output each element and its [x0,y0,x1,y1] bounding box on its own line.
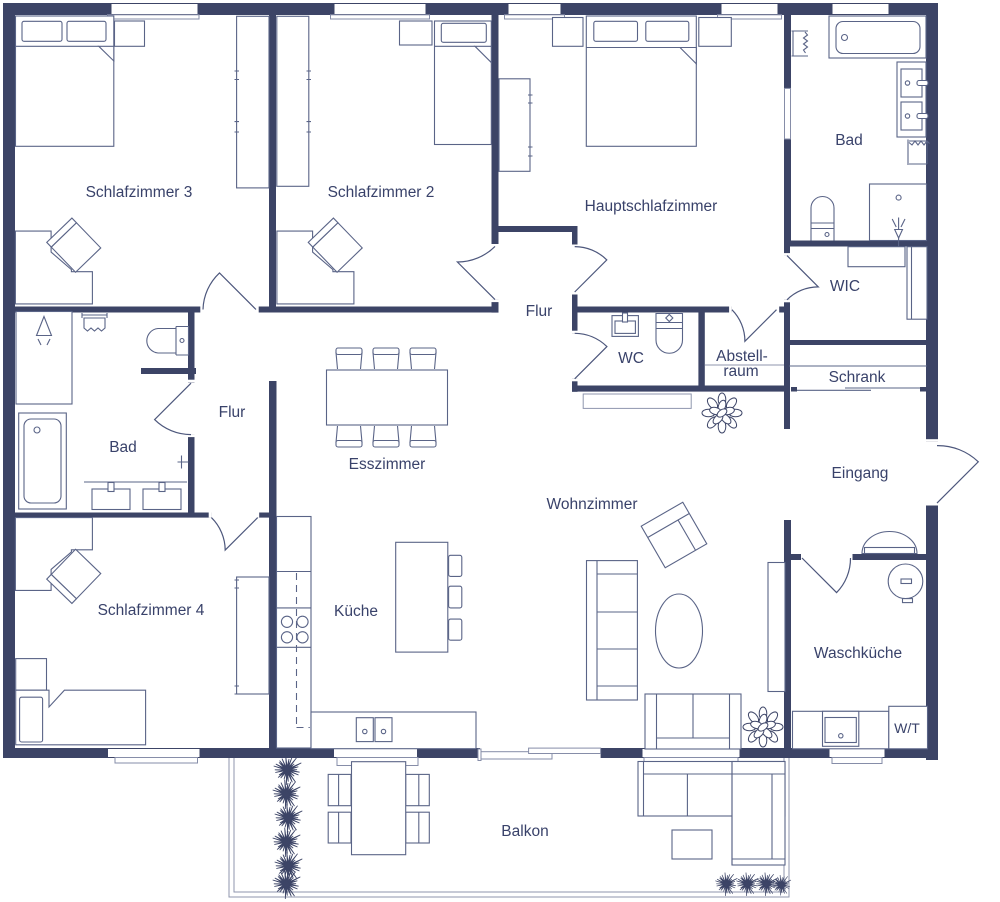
svg-text:WC: WC [618,350,644,367]
svg-text:Schlafzimmer 4: Schlafzimmer 4 [98,602,205,619]
svg-text:W/T: W/T [894,720,920,736]
svg-text:Schrank: Schrank [829,369,886,386]
svg-text:Balkon: Balkon [501,823,548,840]
svg-text:Bad: Bad [835,132,863,149]
svg-text:WIC: WIC [830,278,860,295]
svg-text:Bad: Bad [109,439,137,456]
svg-text:Schlafzimmer 3: Schlafzimmer 3 [86,184,193,201]
svg-text:Flur: Flur [526,303,553,320]
svg-text:Küche: Küche [334,603,378,620]
svg-text:Schlafzimmer 2: Schlafzimmer 2 [328,184,435,201]
svg-text:Flur: Flur [219,404,246,421]
svg-text:Hauptschlafzimmer: Hauptschlafzimmer [585,198,718,215]
svg-text:Wohnzimmer: Wohnzimmer [546,496,637,513]
svg-text:Waschküche: Waschküche [814,645,902,662]
svg-text:Esszimmer: Esszimmer [349,456,426,473]
svg-text:Eingang: Eingang [832,465,889,482]
svg-text:raum: raum [723,363,758,380]
